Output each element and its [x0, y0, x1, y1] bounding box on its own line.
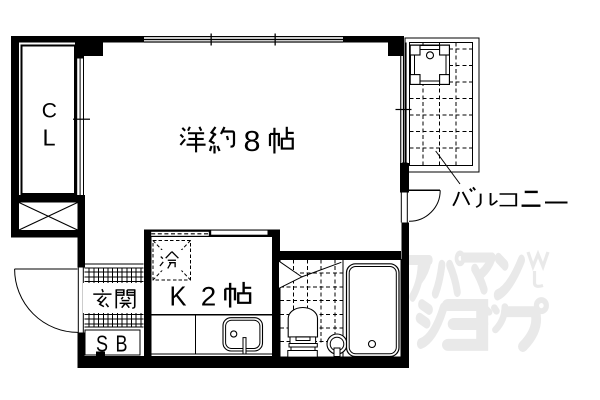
svg-text:8: 8 — [244, 126, 261, 158]
svg-text:K: K — [170, 281, 187, 312]
svg-text:2: 2 — [201, 282, 217, 312]
svg-text:B: B — [116, 331, 128, 357]
svg-text:C: C — [42, 100, 57, 123]
svg-text:L: L — [42, 125, 55, 151]
